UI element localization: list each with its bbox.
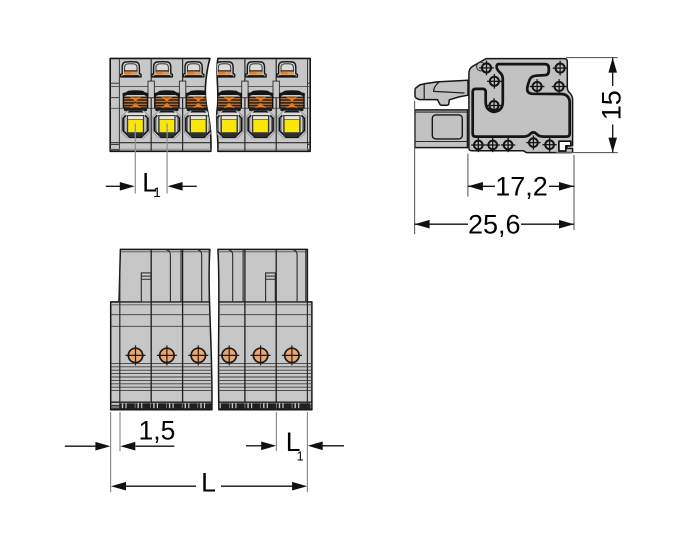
svg-text:15: 15	[596, 90, 626, 120]
svg-text:L: L	[201, 468, 216, 498]
svg-text:1: 1	[297, 449, 304, 463]
svg-text:25,6: 25,6	[468, 209, 521, 239]
svg-text:17,2: 17,2	[495, 171, 548, 201]
svg-text:1: 1	[153, 185, 161, 200]
svg-text:1,5: 1,5	[138, 415, 175, 445]
